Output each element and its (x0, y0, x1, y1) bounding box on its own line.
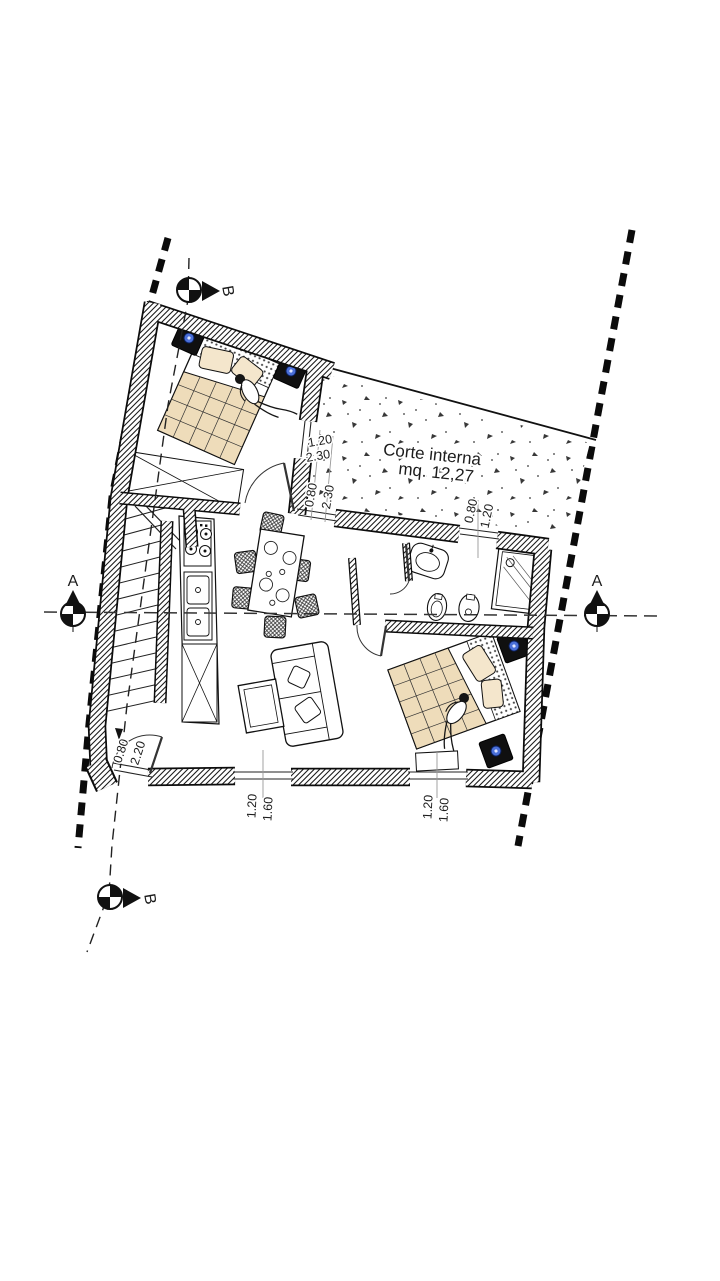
dim-bedroom2-window-w: 1.20 (420, 794, 435, 819)
floor-plan-page: Corte interna mq. 12,27 (0, 0, 720, 1281)
section-letter-a-right: A (592, 573, 603, 590)
kitchen (179, 516, 219, 724)
dining-chair (295, 594, 320, 619)
dim-bedroom2-window-h: 1.60 (436, 797, 451, 822)
sink-drain-2 (196, 620, 201, 625)
kitchen-cabinet (182, 644, 217, 722)
sink-drain-1 (196, 588, 201, 593)
coffee-table (238, 679, 284, 733)
entry-corner-hatch (96, 763, 107, 787)
section-letter-a-left: A (68, 573, 79, 590)
dim-living-window-w: 1.20 (244, 793, 259, 818)
floor-plan-drawing: Corte interna mq. 12,27 (0, 0, 720, 1281)
dining-chair (264, 616, 286, 638)
dim-living-window-h: 1.60 (260, 796, 275, 821)
